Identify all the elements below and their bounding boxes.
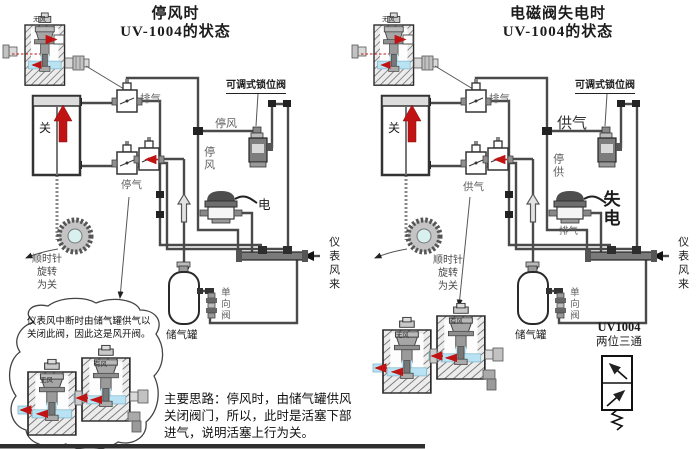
bubble-leader-line — [120, 197, 129, 298]
pneumatic-diagram-canvas: 停风时 UV-1004的状态 无风 排气 停风 停风 停气 可调式锁位阀 电 关… — [0, 0, 698, 449]
scan-artifact-bar — [0, 444, 425, 449]
uv-type-label: 两位三通 — [592, 336, 646, 349]
left-stop-air-label: 停气 — [121, 180, 142, 192]
uv-model-label: UV1004 — [596, 320, 642, 334]
left-title-line2: UV-1004的状态 — [93, 24, 258, 41]
schematic-artwork — [0, 0, 698, 449]
right-check-valve-label: 单向阀 — [567, 287, 578, 322]
left-instrument-air-label: 仪表风来 — [327, 236, 340, 292]
right-stop-supply-label: 停供 — [551, 153, 564, 179]
right-supply-line-label: 供气 — [557, 116, 587, 133]
left-title-line1: 停风时 — [93, 6, 258, 23]
left-lock-valve-label: 可调式锁位阀 — [226, 80, 286, 94]
bubble-note: 仪表风中断时由储气罐供气以关闭此阀，因此这是风开阀。 — [27, 316, 153, 341]
uv1004-symbol — [602, 356, 632, 430]
right-tank-label: 储气罐 — [515, 330, 547, 342]
bubble-tag-right: 有风 — [94, 361, 107, 368]
right-cylinder-state: 关 — [388, 122, 400, 136]
right-supply-air-label: 供气 — [463, 182, 484, 194]
left-tank-label: 储气罐 — [166, 330, 198, 342]
right-exhaust-label: 排气 — [489, 94, 510, 106]
left-stop-wind-line-label: 停风 — [215, 118, 237, 131]
left-cutaway-tag: 无风 — [33, 16, 46, 23]
right-pair-tag-right: 有风 — [450, 318, 463, 325]
left-check-valve-label: 单向阀 — [218, 287, 229, 322]
footnote: 主要思路：停风时，由储气罐供风关闭阀门，所以，此时是活塞下部进气，说明活塞上行为… — [164, 391, 362, 442]
spring-symbol — [612, 410, 622, 430]
right-wheel-note: 顺时针 旋转 为关 — [428, 254, 468, 293]
right-title-line1: 电磁阀失电时 — [448, 6, 668, 23]
right-power-loss-label: 失电 — [600, 190, 620, 228]
right-lock-valve-label: 可调式锁位阀 — [575, 80, 635, 94]
right-pair-tag-left: 无风 — [396, 332, 409, 339]
panel-right-geometry — [352, 13, 669, 324]
left-cylinder-state: 关 — [39, 122, 51, 136]
valve-pair-detail-right — [373, 303, 503, 393]
left-power-label: 电 — [258, 198, 271, 212]
left-wheel-note: 顺时针 旋转 为关 — [28, 253, 66, 292]
right-title-line2: UV-1004的状态 — [448, 24, 668, 41]
left-stop-wind-vert-label: 停风 — [202, 146, 215, 172]
right-instrument-air-label: 仪表风来 — [676, 236, 689, 292]
right-cutaway-tag: 无风 — [382, 16, 395, 23]
left-exhaust-label: 排气 — [140, 94, 161, 106]
bubble-tag-left: 无风 — [40, 377, 53, 384]
right-solenoid-exhaust-label: 排气 — [559, 227, 578, 238]
